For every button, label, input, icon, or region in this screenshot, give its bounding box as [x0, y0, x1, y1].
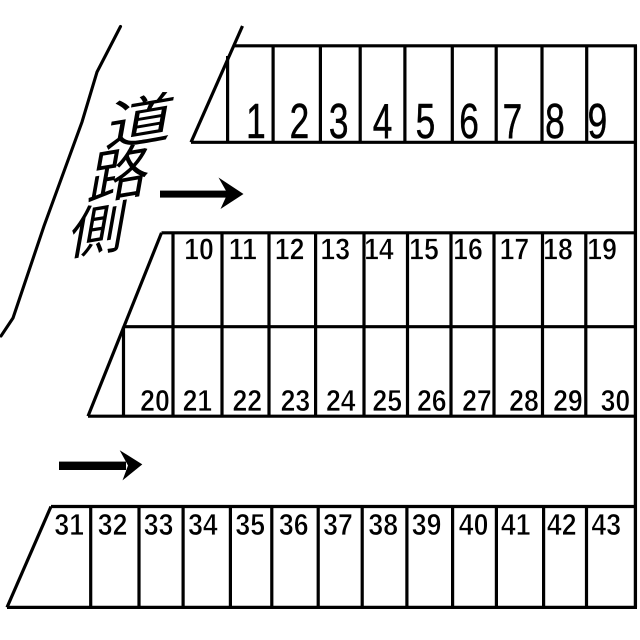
svg-text:8: 8	[545, 94, 565, 149]
svg-text:14: 14	[364, 233, 394, 267]
svg-text:6: 6	[459, 94, 479, 149]
svg-text:16: 16	[453, 233, 483, 267]
svg-text:30: 30	[601, 384, 631, 418]
svg-text:38: 38	[368, 508, 398, 542]
svg-text:11: 11	[229, 233, 257, 267]
svg-text:3: 3	[329, 94, 349, 149]
svg-text:7: 7	[503, 94, 523, 149]
svg-text:5: 5	[416, 94, 436, 149]
svg-text:13: 13	[320, 233, 350, 267]
svg-text:33: 33	[144, 508, 174, 542]
svg-text:43: 43	[591, 508, 621, 542]
svg-text:1: 1	[246, 94, 266, 149]
svg-text:32: 32	[98, 508, 128, 542]
svg-text:22: 22	[232, 384, 262, 418]
svg-text:39: 39	[412, 508, 442, 542]
svg-text:9: 9	[588, 94, 608, 149]
svg-text:27: 27	[462, 384, 492, 418]
svg-text:18: 18	[543, 233, 573, 267]
svg-text:24: 24	[326, 384, 356, 418]
svg-text:20: 20	[140, 384, 170, 418]
svg-text:41: 41	[501, 508, 531, 542]
svg-text:15: 15	[409, 233, 439, 267]
svg-text:21: 21	[183, 384, 213, 418]
svg-text:26: 26	[417, 384, 447, 418]
svg-text:12: 12	[275, 233, 305, 267]
svg-text:28: 28	[509, 384, 539, 418]
svg-text:25: 25	[372, 384, 402, 418]
svg-text:23: 23	[281, 384, 311, 418]
svg-text:34: 34	[188, 508, 218, 542]
svg-text:2: 2	[290, 94, 310, 149]
svg-text:36: 36	[279, 508, 309, 542]
svg-text:35: 35	[235, 508, 265, 542]
svg-text:10: 10	[184, 233, 214, 267]
svg-text:4: 4	[373, 94, 393, 149]
svg-text:42: 42	[547, 508, 577, 542]
svg-text:29: 29	[553, 384, 583, 418]
svg-text:17: 17	[500, 233, 530, 267]
svg-text:19: 19	[587, 233, 617, 267]
svg-text:31: 31	[54, 508, 84, 542]
svg-text:37: 37	[323, 508, 353, 542]
svg-text:40: 40	[459, 508, 489, 542]
